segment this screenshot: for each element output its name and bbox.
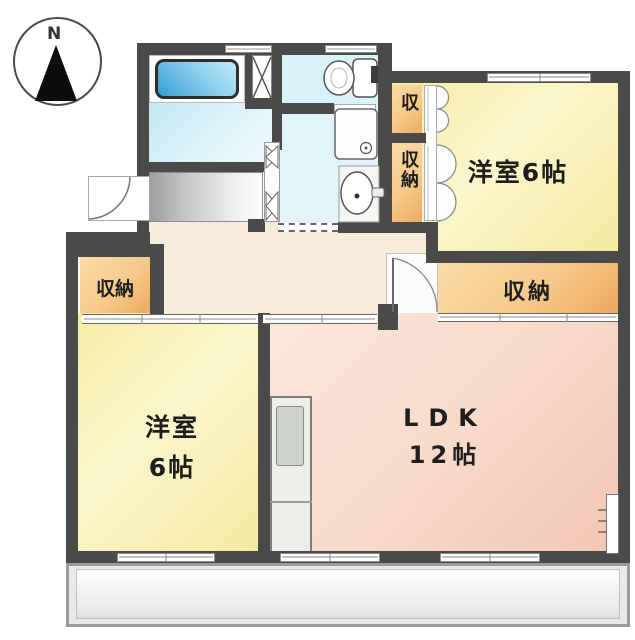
wall — [338, 222, 438, 233]
wall — [137, 43, 149, 178]
wall — [245, 55, 252, 103]
room-label-bedroom-upper-right: 洋室6帖 — [420, 153, 616, 189]
wall — [382, 133, 426, 143]
window — [440, 553, 540, 562]
ldk-side-door — [606, 494, 619, 554]
wall — [66, 232, 150, 244]
wall — [432, 251, 618, 263]
bathtub-icon — [155, 59, 239, 99]
window — [280, 553, 380, 562]
wall — [245, 98, 282, 109]
window — [325, 45, 377, 53]
kitchen-counter-divider — [270, 501, 312, 503]
kitchen-sink — [276, 406, 304, 466]
entrance-door-swing — [88, 176, 150, 221]
room-label-line: 洋室 — [92, 408, 252, 444]
room-label-ldk: LDK 12帖 — [335, 404, 555, 470]
sliding-door — [263, 314, 377, 324]
toilet-door — [334, 104, 376, 113]
window — [487, 73, 591, 82]
window — [225, 45, 272, 53]
wall — [66, 232, 78, 563]
room-label-bedroom-lower-left: 洋室 6帖 — [92, 408, 252, 484]
sliding-door — [438, 313, 618, 322]
room-label-closet-upper: 収 — [389, 93, 421, 113]
window — [117, 553, 215, 562]
wall — [618, 71, 630, 563]
toilet-room-floor — [282, 55, 378, 103]
balcony-floor — [76, 569, 620, 619]
hallway-floor — [137, 222, 382, 314]
room-label-closet-lower-right: 収納 — [438, 274, 618, 306]
sliding-door — [82, 314, 258, 324]
folding-door — [264, 142, 280, 222]
wall — [426, 222, 438, 263]
compass-north-label: N — [47, 24, 61, 44]
dashed-boundary — [278, 223, 338, 232]
wall — [150, 244, 164, 315]
room-label-line: 12帖 — [335, 435, 555, 470]
entrance-genkan — [149, 172, 263, 222]
wall — [282, 103, 334, 114]
wall — [137, 162, 264, 172]
bathroom-floor — [149, 103, 272, 163]
washroom-floor — [278, 103, 378, 223]
wall — [378, 304, 398, 330]
room-label-closet-middle: 収納 — [389, 150, 421, 190]
room-label-closet-hall: 収納 — [80, 274, 150, 301]
wall — [258, 313, 270, 563]
wall — [248, 219, 265, 232]
room-label-line: 6帖 — [92, 448, 252, 484]
wall — [272, 55, 282, 103]
floor-plan: N — [0, 0, 635, 640]
pipe-shaft-icon — [252, 55, 272, 100]
room-label-line: LDK — [335, 404, 555, 432]
